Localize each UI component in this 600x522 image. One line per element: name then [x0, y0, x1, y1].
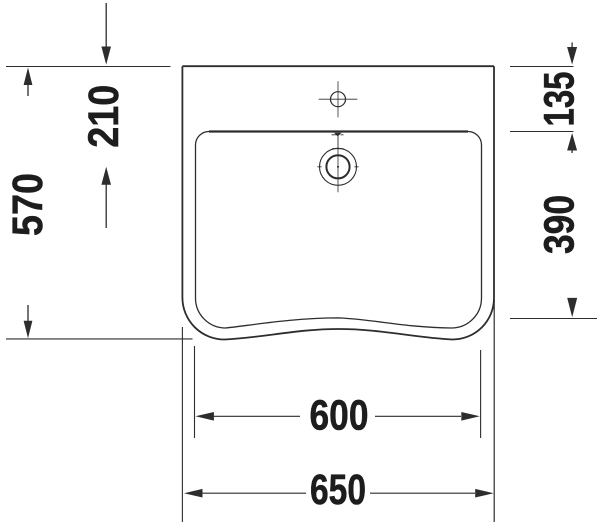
svg-text:135: 135	[537, 72, 584, 127]
svg-text:390: 390	[537, 195, 584, 254]
svg-text:210: 210	[81, 85, 128, 148]
svg-text:570: 570	[5, 173, 52, 236]
svg-text:600: 600	[310, 392, 369, 439]
svg-text:650: 650	[310, 467, 366, 514]
